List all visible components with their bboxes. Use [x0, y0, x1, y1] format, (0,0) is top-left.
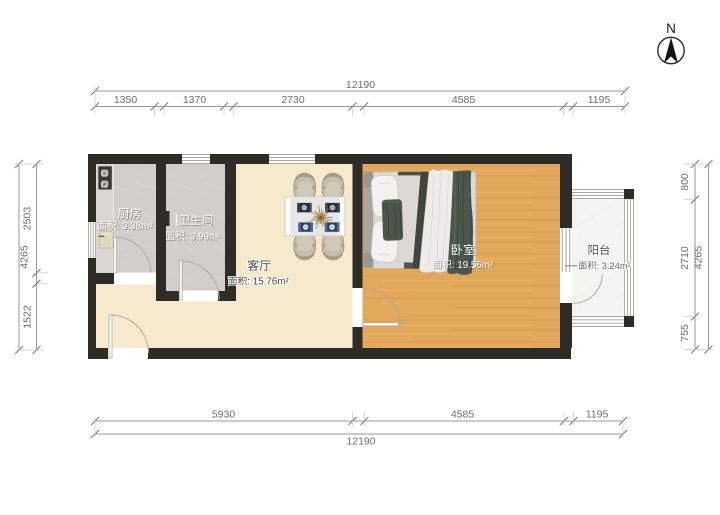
- svg-text:755: 755: [679, 324, 691, 342]
- svg-text:12190: 12190: [346, 79, 375, 91]
- svg-text:N: N: [666, 21, 676, 36]
- svg-text:: 3.99m²: : 3.99m²: [185, 231, 222, 242]
- svg-text:2503: 2503: [22, 207, 34, 231]
- svg-text:1350: 1350: [114, 94, 138, 106]
- svg-text:: 15.76m²: : 15.76m²: [247, 277, 289, 288]
- svg-text:12190: 12190: [346, 436, 375, 448]
- svg-text:4585: 4585: [452, 94, 476, 106]
- svg-text:4585: 4585: [451, 409, 475, 421]
- svg-text:4265: 4265: [19, 245, 31, 269]
- svg-text:1195: 1195: [588, 94, 611, 106]
- svg-text:: 19.56m²: : 19.56m²: [452, 260, 494, 271]
- svg-text:5930: 5930: [212, 409, 236, 421]
- svg-text:800: 800: [679, 173, 691, 191]
- svg-text:: 3.38m²: : 3.38m²: [117, 221, 154, 232]
- svg-text:1522: 1522: [22, 305, 34, 329]
- svg-text:4265: 4265: [693, 246, 705, 270]
- svg-text:1370: 1370: [183, 94, 207, 106]
- svg-text:: 3.24m²: : 3.24m²: [597, 261, 631, 271]
- svg-text:2710: 2710: [679, 246, 691, 270]
- svg-text:2730: 2730: [281, 94, 305, 106]
- svg-text:1195: 1195: [586, 409, 609, 421]
